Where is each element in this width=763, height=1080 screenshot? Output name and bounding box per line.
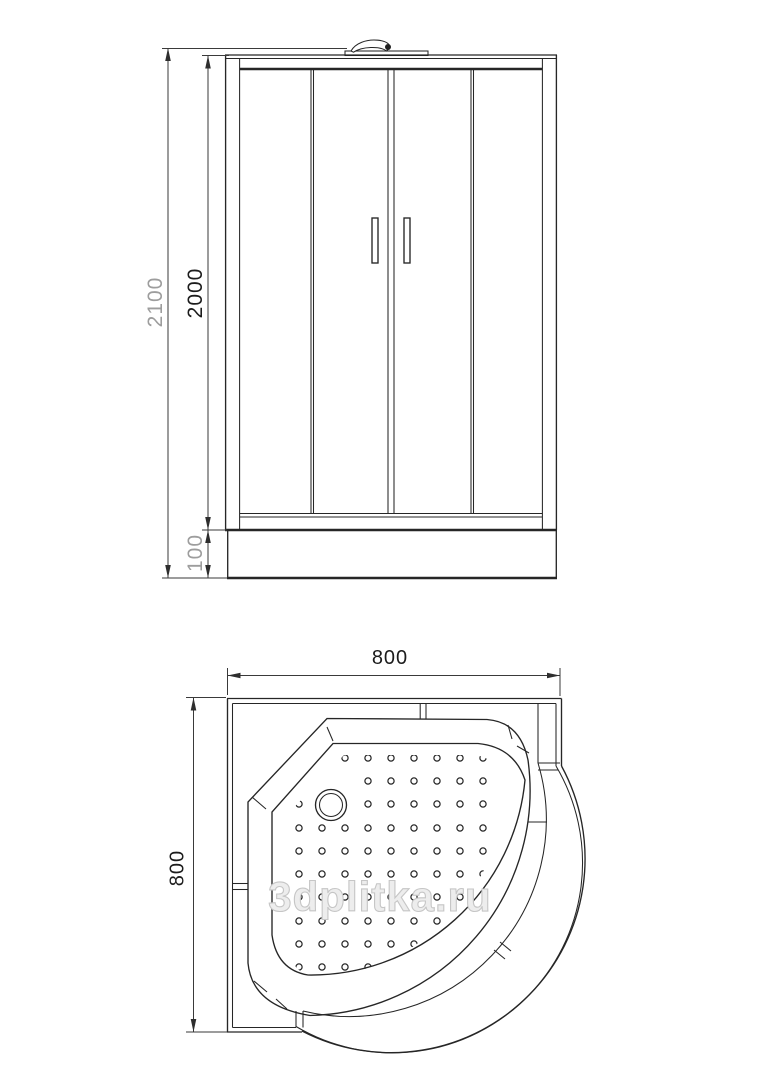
anti-slip-dot <box>296 941 302 947</box>
anti-slip-dot <box>365 848 371 854</box>
dim-label-2000: 2000 <box>184 268 207 319</box>
drain-icon <box>316 790 347 821</box>
anti-slip-dot <box>434 778 440 784</box>
anti-slip-dot <box>411 801 417 807</box>
anti-slip-dot <box>365 778 371 784</box>
anti-slip-dot <box>457 964 463 970</box>
anti-slip-dot <box>457 941 463 947</box>
anti-slip-dot <box>434 941 440 947</box>
anti-slip-dot <box>434 964 440 970</box>
anti-slip-dot <box>480 848 486 854</box>
dim-label-800-top: 800 <box>372 647 408 669</box>
technical-drawing: 2100 2000 100 <box>0 0 763 1080</box>
anti-slip-dot <box>319 848 325 854</box>
dimension-cabin-height: 2000 <box>184 56 229 531</box>
anti-slip-dot <box>388 778 394 784</box>
anti-slip-dot <box>388 964 394 970</box>
dimension-tray-height: 100 <box>184 530 227 578</box>
anti-slip-dot <box>411 964 417 970</box>
anti-slip-dot <box>365 801 371 807</box>
cabin-frame <box>225 55 557 530</box>
anti-slip-dot <box>434 848 440 854</box>
anti-slip-dot <box>480 778 486 784</box>
door-handle-right <box>404 218 410 263</box>
tray-dots <box>296 755 486 970</box>
dim-label-100: 100 <box>184 534 207 572</box>
anti-slip-dot <box>319 941 325 947</box>
tray-rim <box>248 719 530 1016</box>
dimension-plan-width: 800 <box>228 647 561 696</box>
anti-slip-dot <box>388 848 394 854</box>
dim-label-800-left: 800 <box>166 850 188 886</box>
anti-slip-dot <box>319 964 325 970</box>
tray-basin <box>272 744 525 976</box>
front-elevation: 2100 2000 100 <box>144 40 557 578</box>
anti-slip-dot <box>480 755 486 761</box>
dimension-total-height: 2100 <box>144 48 347 578</box>
anti-slip-dot <box>480 941 486 947</box>
anti-slip-dot <box>388 755 394 761</box>
anti-slip-dot <box>319 825 325 831</box>
anti-slip-dot <box>342 964 348 970</box>
anti-slip-dot <box>296 825 302 831</box>
anti-slip-dot <box>296 755 302 761</box>
shower-arm <box>351 40 390 52</box>
anti-slip-dot <box>411 848 417 854</box>
tray-front <box>225 530 557 578</box>
anti-slip-dot <box>296 801 302 807</box>
anti-slip-dot <box>342 848 348 854</box>
door-handles <box>372 218 410 263</box>
tray-plan <box>248 719 530 1016</box>
anti-slip-dot <box>388 801 394 807</box>
plan-walls <box>227 699 562 1033</box>
anti-slip-dot <box>457 825 463 831</box>
anti-slip-dot <box>480 825 486 831</box>
dim-label-2100: 2100 <box>144 277 167 328</box>
dimension-plan-depth: 800 <box>166 698 227 1033</box>
anti-slip-dot <box>457 778 463 784</box>
anti-slip-dot <box>365 941 371 947</box>
drawing-canvas: 2100 2000 100 <box>0 0 763 1080</box>
corner-ticks <box>252 725 529 1009</box>
frame-joints <box>233 704 561 1028</box>
watermark-text: 3dplitka.ru <box>268 873 491 920</box>
anti-slip-dot <box>457 755 463 761</box>
door-handle-left <box>372 218 378 263</box>
anti-slip-dot <box>434 825 440 831</box>
glass-panel-dividers <box>311 69 474 514</box>
anti-slip-dot <box>365 825 371 831</box>
shower-head-top-icon <box>345 40 428 55</box>
anti-slip-dot <box>342 825 348 831</box>
anti-slip-dot <box>434 801 440 807</box>
anti-slip-dot <box>296 964 302 970</box>
anti-slip-dot <box>411 778 417 784</box>
anti-slip-dot <box>388 825 394 831</box>
anti-slip-dot <box>457 801 463 807</box>
anti-slip-dot <box>411 941 417 947</box>
plan-view: 800 800 3dplitka.ru <box>166 647 585 1053</box>
anti-slip-dot <box>296 848 302 854</box>
anti-slip-dot <box>480 801 486 807</box>
anti-slip-dot <box>434 755 440 761</box>
shower-arm-tip <box>385 44 391 50</box>
anti-slip-dot <box>388 941 394 947</box>
anti-slip-dot <box>342 941 348 947</box>
anti-slip-dot <box>411 825 417 831</box>
anti-slip-dot <box>457 848 463 854</box>
anti-slip-dot <box>411 755 417 761</box>
anti-slip-dot <box>342 755 348 761</box>
anti-slip-dot <box>365 755 371 761</box>
